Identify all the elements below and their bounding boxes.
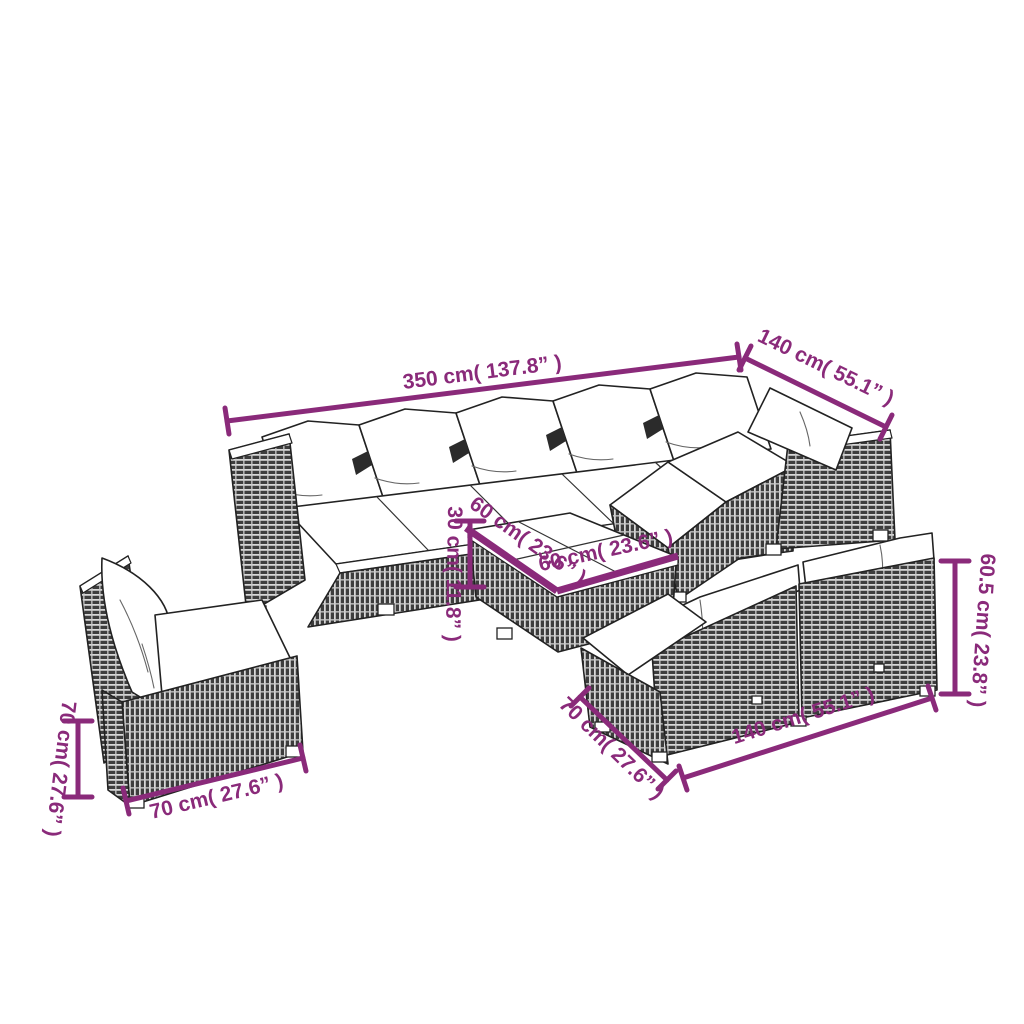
dim-sofa-height-label: 60.5 cm( 23.8” )	[966, 553, 1000, 708]
dim-chair-height-label: 70 cm( 27.6” )	[41, 700, 80, 838]
dim-sofa-height-line	[941, 561, 969, 694]
dim-table-height-label: 30 cm( 11.8” )	[441, 506, 466, 642]
product-dimension-diagram: 350 cm( 137.8” ) 140 cm( 55.1” ) 30 cm( …	[0, 0, 1024, 1024]
furniture-diagram-canvas: 350 cm( 137.8” ) 140 cm( 55.1” ) 30 cm( …	[0, 0, 1024, 1024]
